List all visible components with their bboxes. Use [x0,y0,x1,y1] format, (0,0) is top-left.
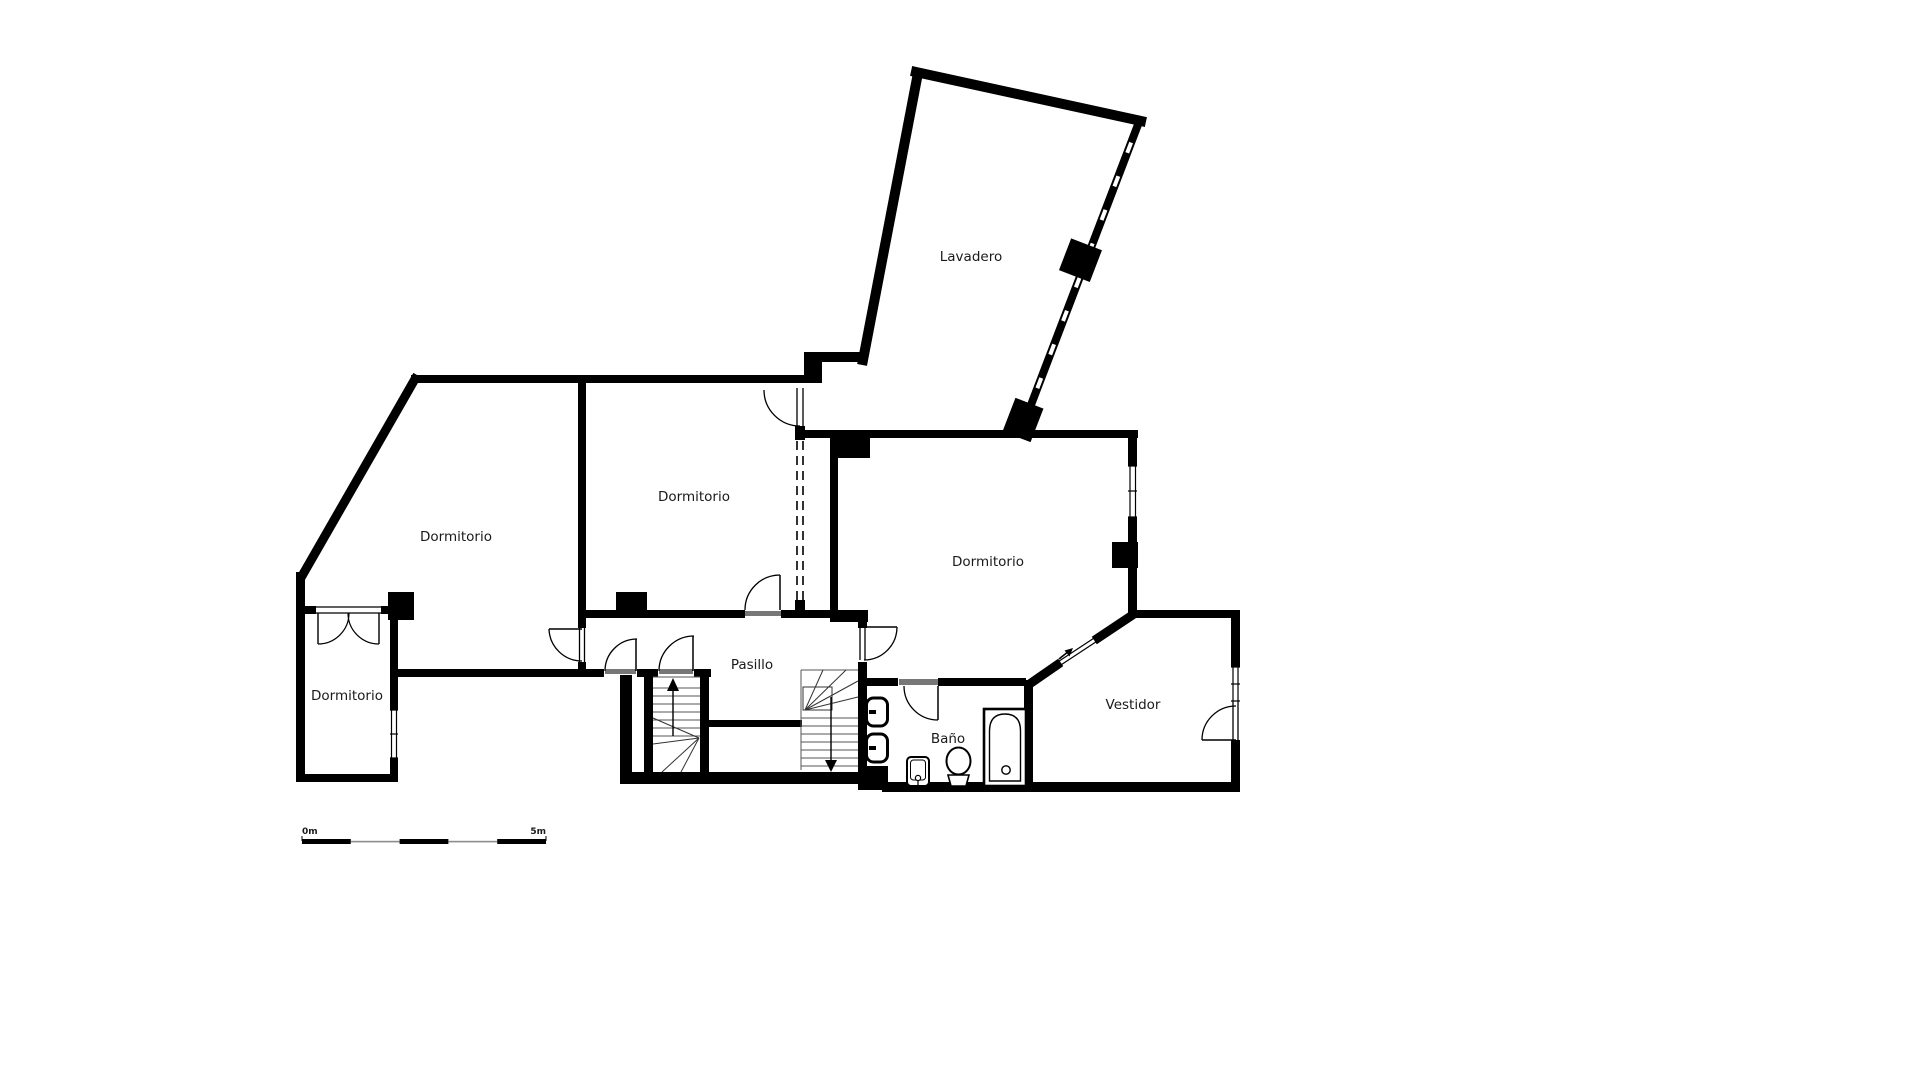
door [764,388,803,426]
window [1231,667,1240,701]
stair-up [653,677,700,772]
scale-end-label: 5m [530,827,546,837]
window [1128,466,1137,517]
door [860,627,897,660]
sink [907,757,929,786]
bathtub [984,709,1026,786]
lavadero-window-wall [1003,122,1139,442]
radiator [867,698,888,726]
floor-plan-page: Lavadero Dormitorio Dormitorio Dormitori… [0,0,1920,1080]
room-label-dormitorio-right: Dormitorio [952,554,1024,570]
radiator [867,734,888,762]
doors [316,388,1238,740]
scale-start-label: 0m [302,827,318,837]
room-label-dormitorio-small: Dormitorio [311,688,383,704]
up-arrow-icon [667,678,679,691]
walls [296,352,1240,792]
door [1202,701,1238,740]
stair-down [801,670,858,772]
door [549,628,585,662]
floor-plan-drawing: Lavadero Dormitorio Dormitorio Dormitori… [0,0,1920,1080]
double-door [316,607,381,644]
room-label-dormitorio-center: Dormitorio [658,489,730,505]
door [659,636,694,674]
window [390,710,398,758]
dashed-opening [797,441,803,600]
toilet [947,748,971,787]
room-label-lavadero: Lavadero [940,249,1002,265]
door [745,575,781,616]
room-label-vestidor: Vestidor [1106,697,1161,713]
door [605,639,637,674]
room-label-bano: Baño [931,731,965,747]
entry-glazing [1056,636,1099,667]
scale-bar: 0m 5m [302,827,546,844]
room-label-dormitorio-left: Dormitorio [420,529,492,545]
door [899,679,938,720]
room-label-pasillo: Pasillo [731,657,773,673]
